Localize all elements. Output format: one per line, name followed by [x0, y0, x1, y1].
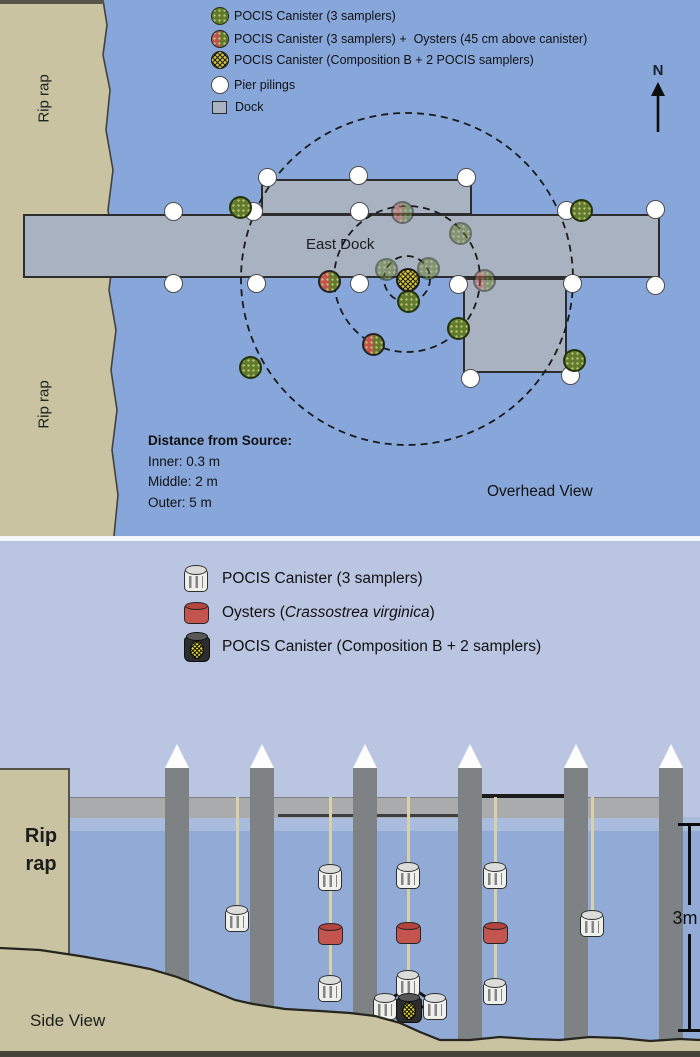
depth-bracket-bottom-cap	[678, 1029, 700, 1032]
rip-rap-label: Rip rap	[12, 822, 70, 878]
bottom-edge-strip	[0, 1051, 700, 1057]
depth-bracket-line	[688, 934, 691, 1030]
seafloor-graphic	[0, 0, 700, 1057]
depth-label: 3m	[668, 908, 700, 929]
figure-stage: East Dock Rip rap Rip rap POCIS Canister…	[0, 0, 700, 1057]
depth-bracket-line	[688, 825, 691, 905]
side-view-caption: Side View	[30, 1011, 105, 1031]
